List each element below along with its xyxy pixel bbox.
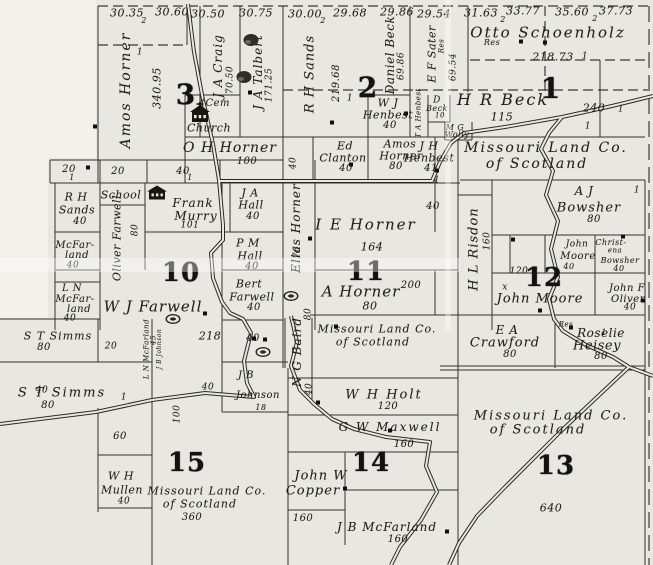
- parcel-label: L N McFarland: [144, 319, 151, 379]
- parcel-label: of Scotland: [486, 157, 588, 171]
- parcel-label: Hall: [237, 251, 262, 262]
- parcel-label: 29.68: [333, 8, 367, 19]
- parcel-label: Sands: [59, 205, 95, 216]
- parcel-label: W J Farwell: [104, 300, 203, 315]
- section-number: 2: [358, 74, 378, 102]
- parcel-label: 640: [540, 503, 563, 514]
- parcel-label: 80: [503, 350, 517, 360]
- parcel-label: 218: [199, 331, 222, 342]
- parcel-label: 1: [69, 174, 75, 182]
- parcel-label: John Moore: [497, 293, 584, 306]
- parcel-label: W J: [378, 98, 399, 109]
- parcel-label: 340.95: [152, 67, 163, 109]
- church-icon: [187, 102, 213, 124]
- parcel-label: Ed: [337, 141, 353, 152]
- parcel-label: J A Craig: [212, 34, 224, 98]
- parcel-label: 69.54: [450, 53, 459, 81]
- parcel-label: J B: [238, 371, 254, 381]
- parcel-label: 76: [294, 246, 303, 258]
- parcel-label: N G Baird: [291, 317, 303, 387]
- parcel-label: 200: [401, 281, 422, 291]
- parcel-label: J B McFarland: [337, 521, 437, 533]
- parcel-label: Missouri Land Co.: [464, 141, 628, 155]
- residence-dot: [349, 162, 353, 167]
- parcel-label: Clanton: [319, 153, 366, 164]
- parcel-label: R H: [65, 192, 88, 203]
- parcel-label: Res: [439, 39, 446, 54]
- parcel-label: O H Horner: [183, 141, 277, 155]
- parcel-label: 40: [73, 217, 87, 227]
- parcel-label: 2: [141, 17, 147, 25]
- grove-icon: [166, 314, 181, 324]
- parcel-label: J B Johnson: [157, 329, 163, 369]
- residence-dot: [330, 120, 334, 125]
- residence-dot: [569, 325, 573, 330]
- parcel-label: L N: [62, 284, 82, 294]
- parcel-label: A Horner: [322, 285, 401, 300]
- residence-dot: [435, 168, 439, 173]
- parcel-label: A J: [575, 185, 594, 197]
- parcel-label: 80: [41, 401, 55, 411]
- parcel-label: Missouri Land Co.: [148, 486, 267, 497]
- parcel-label: P M: [236, 238, 260, 249]
- parcel-label: 30.60: [155, 7, 189, 18]
- parcel-label: 1: [137, 49, 143, 58]
- grove-icon: [256, 347, 271, 357]
- residence-dot: [334, 324, 338, 329]
- parcel-label: 160: [293, 514, 314, 524]
- grove-icon: [284, 291, 299, 301]
- parcel-label: E A: [496, 324, 519, 336]
- parcel-label: 218.73: [532, 52, 574, 63]
- parcel-label: 80: [37, 343, 51, 353]
- parcel-label: 115: [491, 112, 514, 123]
- parcel-label: 30.00: [288, 9, 322, 20]
- parcel-label: of Scotland: [163, 499, 237, 510]
- parcel-label: 160: [484, 232, 493, 251]
- parcel-label: R H Sands: [304, 35, 317, 113]
- parcel-label: 2: [592, 15, 598, 23]
- parcel-label: 40: [290, 157, 299, 169]
- parcel-label: 1: [585, 123, 591, 132]
- residence-dot: [248, 90, 252, 95]
- parcel-label: J H: [420, 141, 439, 152]
- parcel-label: Church: [187, 123, 231, 134]
- residence-dot: [511, 237, 515, 242]
- parcel-label: 40: [306, 383, 315, 395]
- parcel-label: Henbest: [404, 153, 454, 164]
- parcel-label: 30.75: [239, 8, 273, 19]
- parcel-label: W H Holt: [345, 389, 423, 402]
- parcel-label: Farwell: [229, 292, 274, 303]
- tree-icon: [236, 70, 253, 84]
- parcel-label: 20: [111, 167, 125, 177]
- parcel-label: Amos Horner: [119, 32, 133, 149]
- parcel-label: S T Simms: [18, 387, 106, 400]
- parcel-label: Elias Horner: [290, 183, 302, 273]
- residence-dot: [404, 111, 408, 116]
- parcel-label: 40: [247, 303, 261, 313]
- parcel-label: S T Simms: [24, 331, 92, 342]
- parcel-label: Daniel Beck: [384, 16, 396, 95]
- parcel-label: Moore: [560, 252, 595, 262]
- parcel-label: 40: [67, 262, 79, 271]
- parcel-label: 29.54: [417, 9, 451, 20]
- parcel-label: 100: [237, 157, 258, 167]
- parcel-label: 40: [426, 202, 440, 212]
- parcel-label: 160: [388, 535, 409, 545]
- section-number: 14: [352, 450, 390, 476]
- residence-dot: [343, 486, 347, 491]
- section-number: 11: [347, 259, 385, 285]
- parcel-label: 1: [601, 329, 607, 337]
- parcel-label: 80: [587, 215, 601, 225]
- parcel-label: H L Risdon: [468, 207, 481, 290]
- parcel-label: 18: [255, 404, 266, 412]
- residence-dot: [445, 529, 449, 534]
- parcel-label: 80: [363, 301, 378, 312]
- parcel-label: Hall: [238, 200, 263, 211]
- parcel-label: J A: [241, 188, 258, 199]
- residence-dot: [308, 236, 312, 241]
- parcel-label: 360: [182, 513, 203, 523]
- parcel-label: 1: [347, 95, 353, 104]
- parcel-label: 80: [594, 352, 608, 362]
- residence-dot: [263, 337, 267, 342]
- section-number: 13: [537, 453, 575, 479]
- parcel-label: Res: [484, 39, 500, 47]
- parcel-label: 1: [618, 106, 624, 115]
- parcel-label: Amos: [384, 139, 417, 150]
- parcel-label: 1: [121, 394, 127, 403]
- parcel-label: 70.50: [227, 66, 236, 94]
- residence-dot: [388, 428, 392, 433]
- parcel-label: John W: [294, 470, 347, 483]
- parcel-label: 10: [435, 113, 445, 120]
- residence-dot: [93, 124, 97, 129]
- parcel-label: 40: [64, 315, 76, 324]
- parcel-label: land: [65, 251, 89, 261]
- parcel-label: H R Beck: [457, 92, 549, 108]
- parcel-label: 40: [118, 498, 130, 507]
- parcel-label: Johnson: [236, 391, 280, 401]
- parcel-label: 40: [245, 262, 259, 272]
- parcel-label: 40: [624, 304, 636, 313]
- residence-dot: [519, 39, 523, 44]
- parcel-label: 1: [582, 53, 588, 62]
- parcel-label: 20: [105, 343, 117, 352]
- parcel-label: 35.60: [555, 7, 589, 18]
- parcel-label: 40: [383, 121, 397, 131]
- section-number: 12: [525, 265, 563, 291]
- residence-dot: [203, 311, 207, 316]
- residence-dot: [86, 165, 90, 170]
- parcel-label: I E Horner: [315, 218, 416, 233]
- residence-dot: [316, 400, 320, 405]
- parcel-label: Missouri Land Co.: [474, 410, 628, 423]
- parcel-label: 40: [613, 265, 624, 273]
- parcel-label: 33.77: [506, 6, 540, 17]
- parcel-label: W H: [108, 471, 134, 482]
- parcel-label: 164: [361, 242, 384, 253]
- parcel-label: 240: [583, 103, 606, 114]
- residence-dot: [543, 40, 547, 45]
- parcel-label: T A Henbest: [416, 88, 423, 137]
- section-number: 15: [168, 450, 206, 476]
- parcel-label: 1: [634, 187, 640, 196]
- parcel-label: 69.86: [398, 52, 407, 80]
- parcel-label: Frank: [172, 197, 213, 209]
- parcel-label: 1: [434, 177, 440, 186]
- school-icon: [146, 186, 168, 201]
- residence-dot: [641, 298, 645, 303]
- parcel-label: 100: [174, 405, 183, 424]
- parcel-label: 120: [378, 402, 399, 412]
- parcel-label: 60: [113, 432, 127, 442]
- parcel-label: 2: [320, 17, 326, 25]
- parcel-label: 101: [181, 222, 200, 231]
- plat-map: 30.35230.6030.5030.7530.00229.6829.8629.…: [0, 0, 653, 565]
- parcel-label: 80: [389, 162, 403, 172]
- parcel-label: 40: [563, 263, 574, 271]
- parcel-label: of Scotland: [490, 424, 587, 437]
- parcel-label: Bert: [236, 279, 262, 290]
- parcel-label: E F Sater: [427, 25, 438, 82]
- parcel-label: 40: [36, 387, 48, 396]
- residence-dot: [538, 308, 542, 313]
- residence-dot: [621, 234, 625, 239]
- parcel-label: John F: [609, 284, 645, 294]
- parcel-label: 219.68: [332, 64, 342, 102]
- parcel-label: ena: [608, 248, 622, 255]
- parcel-label: 40: [202, 384, 214, 393]
- parcel-label: Bowsher: [557, 202, 621, 215]
- parcel-label: John: [566, 241, 589, 250]
- parcel-label: 80: [132, 224, 141, 236]
- parcel-label: 40: [246, 212, 260, 222]
- parcel-label: 37.73: [599, 6, 633, 17]
- section-number: 10: [162, 260, 200, 286]
- parcel-label: 160: [394, 440, 415, 450]
- parcel-label: Oliver Farwell: [112, 195, 123, 281]
- parcel-label: 30.35: [110, 8, 144, 19]
- residence-dot: [252, 336, 256, 341]
- parcel-label: 30.50: [191, 9, 225, 20]
- parcel-label: 31.63: [464, 8, 498, 19]
- parcel-label: Crawford: [470, 337, 540, 350]
- parcel-label: 1: [187, 174, 193, 182]
- label-layer: 30.35230.6030.5030.7530.00229.6829.8629.…: [0, 0, 653, 565]
- parcel-label: 80: [305, 308, 314, 320]
- parcel-label: of Scotland: [336, 337, 410, 348]
- parcel-label: Copper: [286, 485, 340, 498]
- parcel-label: 171.25: [266, 68, 275, 103]
- parcel-label: Wolly: [445, 131, 470, 139]
- tree-icon: [243, 33, 260, 47]
- parcel-label: Mullen: [101, 485, 143, 496]
